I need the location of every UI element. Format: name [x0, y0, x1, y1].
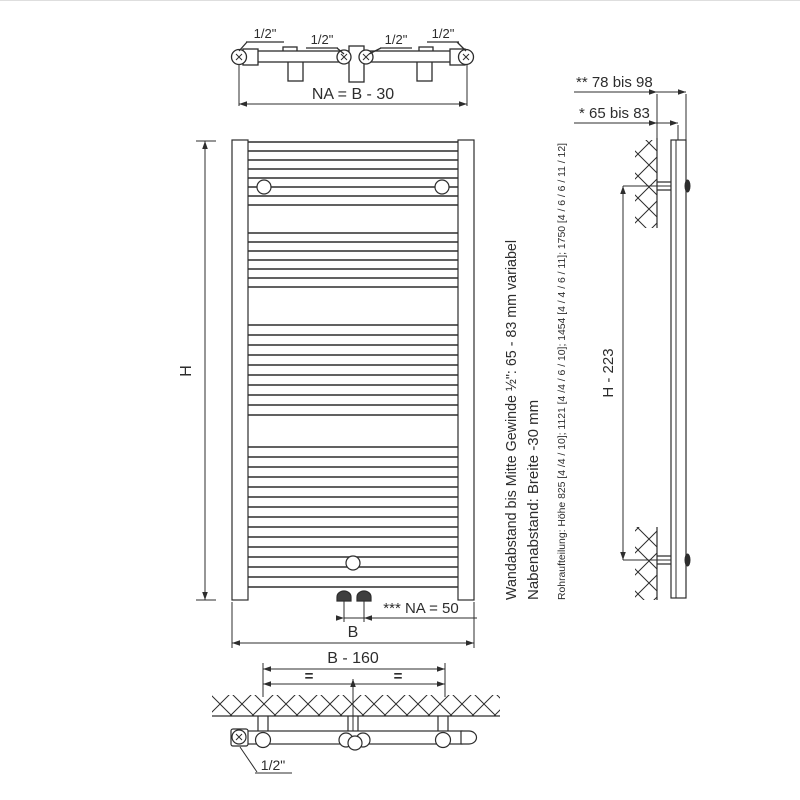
- arrowhead: [202, 141, 208, 149]
- arrowhead: [350, 679, 356, 687]
- wall-distance-note-line2: Nabenabstand: Breite -30 mm: [525, 400, 542, 600]
- h223-dimension-label: H - 223: [600, 348, 617, 397]
- left-collector: [232, 140, 248, 600]
- arrowhead: [437, 681, 445, 687]
- arrowhead: [232, 640, 240, 646]
- equal-mark-left: =: [305, 668, 314, 685]
- arrowhead: [459, 101, 467, 107]
- h-dimension-label: H: [178, 365, 195, 377]
- half-inch-label-bottom: 1/2": [261, 757, 285, 773]
- arrowhead: [202, 592, 208, 600]
- h223-dimension-line: [623, 186, 671, 560]
- na-dimension-label: NA = B - 30: [312, 86, 394, 103]
- wall-bracket-lines: [657, 182, 671, 564]
- wall-hatch-top: [635, 140, 657, 228]
- arrowhead: [364, 615, 372, 621]
- bracket-tab: [417, 60, 432, 81]
- hub-nipple-bottom: [685, 554, 691, 567]
- front-view: [196, 140, 477, 648]
- front-view-labels: H B *** NA = 50: [178, 365, 459, 641]
- right-end-cap: [461, 731, 477, 744]
- annotation-notes: Wandabstand bis Mitte Gewinde ½": 65 - 8…: [503, 143, 568, 600]
- wall-hatch-bottom: [635, 527, 657, 600]
- half-inch-label-2: 1/2": [311, 32, 334, 47]
- wall-hatch-band: [212, 695, 500, 716]
- wall-dist-inner-label: * 65 bis 83: [579, 105, 650, 122]
- b160-dimension-label: B - 160: [327, 650, 379, 667]
- arrowhead: [336, 615, 344, 621]
- right-collector: [458, 140, 474, 600]
- mounting-hole-left: [257, 180, 271, 194]
- wall-distance-inner-dim: [574, 123, 678, 140]
- arrowhead: [466, 640, 474, 646]
- bracket-tab: [288, 60, 303, 81]
- vent-hole: [346, 556, 360, 570]
- na50-dimension-label: *** NA = 50: [383, 600, 458, 617]
- arrowhead: [649, 89, 657, 95]
- arrowhead: [678, 89, 686, 95]
- pipe-layout-note: Rohraufteilung: Höhe 825 [4 /4 / 10]; 11…: [556, 143, 568, 600]
- arrowhead: [263, 666, 271, 672]
- valve-connection-left: [337, 591, 351, 601]
- arrowhead: [670, 120, 678, 126]
- mounting-hole-right: [435, 180, 449, 194]
- hub-circle-right: [436, 733, 451, 748]
- technical-drawing-page: 1/2" 1/2" 1/2" 1/2" NA = B - 30 H B *** …: [0, 0, 800, 800]
- b-dimension-label: B: [348, 624, 359, 641]
- half-inch-label-3: 1/2": [385, 32, 408, 47]
- half-inch-label-1: 1/2": [254, 26, 277, 41]
- radiator-profile: [671, 140, 686, 598]
- hub-nipple-top: [685, 180, 691, 193]
- b160-dimension-line: [263, 663, 445, 697]
- arrowhead: [649, 120, 657, 126]
- hub-circle-left: [256, 733, 271, 748]
- arrowhead: [239, 101, 247, 107]
- page-edge-line: [0, 0, 800, 1]
- h-dimension-line: [196, 141, 216, 600]
- arrowhead: [620, 552, 626, 560]
- arrowhead: [620, 186, 626, 194]
- wall-dist-outer-label: ** 78 bis 98: [576, 74, 653, 91]
- arrowhead: [437, 666, 445, 672]
- half-inch-label-4: 1/2": [432, 26, 455, 41]
- radiator-tubes: [248, 142, 458, 587]
- arrowhead: [263, 681, 271, 687]
- side-view: [574, 92, 691, 600]
- hub-circle-center: [348, 736, 362, 750]
- radiator-dimension-drawing: 1/2" 1/2" 1/2" 1/2" NA = B - 30 H B *** …: [0, 0, 800, 800]
- valve-connection-right: [357, 591, 371, 601]
- equal-mark-right: =: [394, 668, 403, 685]
- wall-distance-note-line1: Wandabstand bis Mitte Gewinde ½": 65 - 8…: [503, 240, 520, 600]
- bottom-view: [212, 663, 500, 773]
